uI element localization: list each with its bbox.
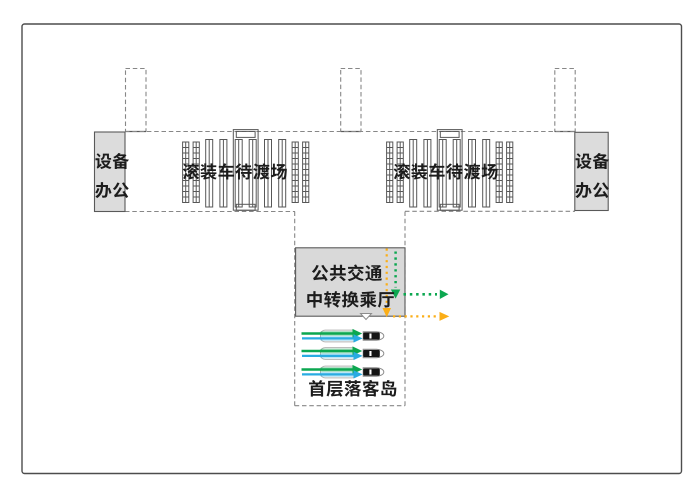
svg-text:设备: 设备: [95, 147, 130, 172]
svg-text:首层落客岛: 首层落客岛: [308, 376, 398, 401]
svg-text:设备: 设备: [575, 147, 610, 172]
svg-text:中转换乘厅: 中转换乘厅: [306, 287, 396, 312]
svg-text:滚装车待渡场: 滚装车待渡场: [393, 158, 499, 183]
svg-text:办公: 办公: [575, 177, 610, 202]
svg-text:公共交通: 公共交通: [311, 261, 383, 286]
svg-text:滚装车待渡场: 滚装车待渡场: [182, 158, 288, 183]
svg-text:办公: 办公: [95, 177, 130, 202]
